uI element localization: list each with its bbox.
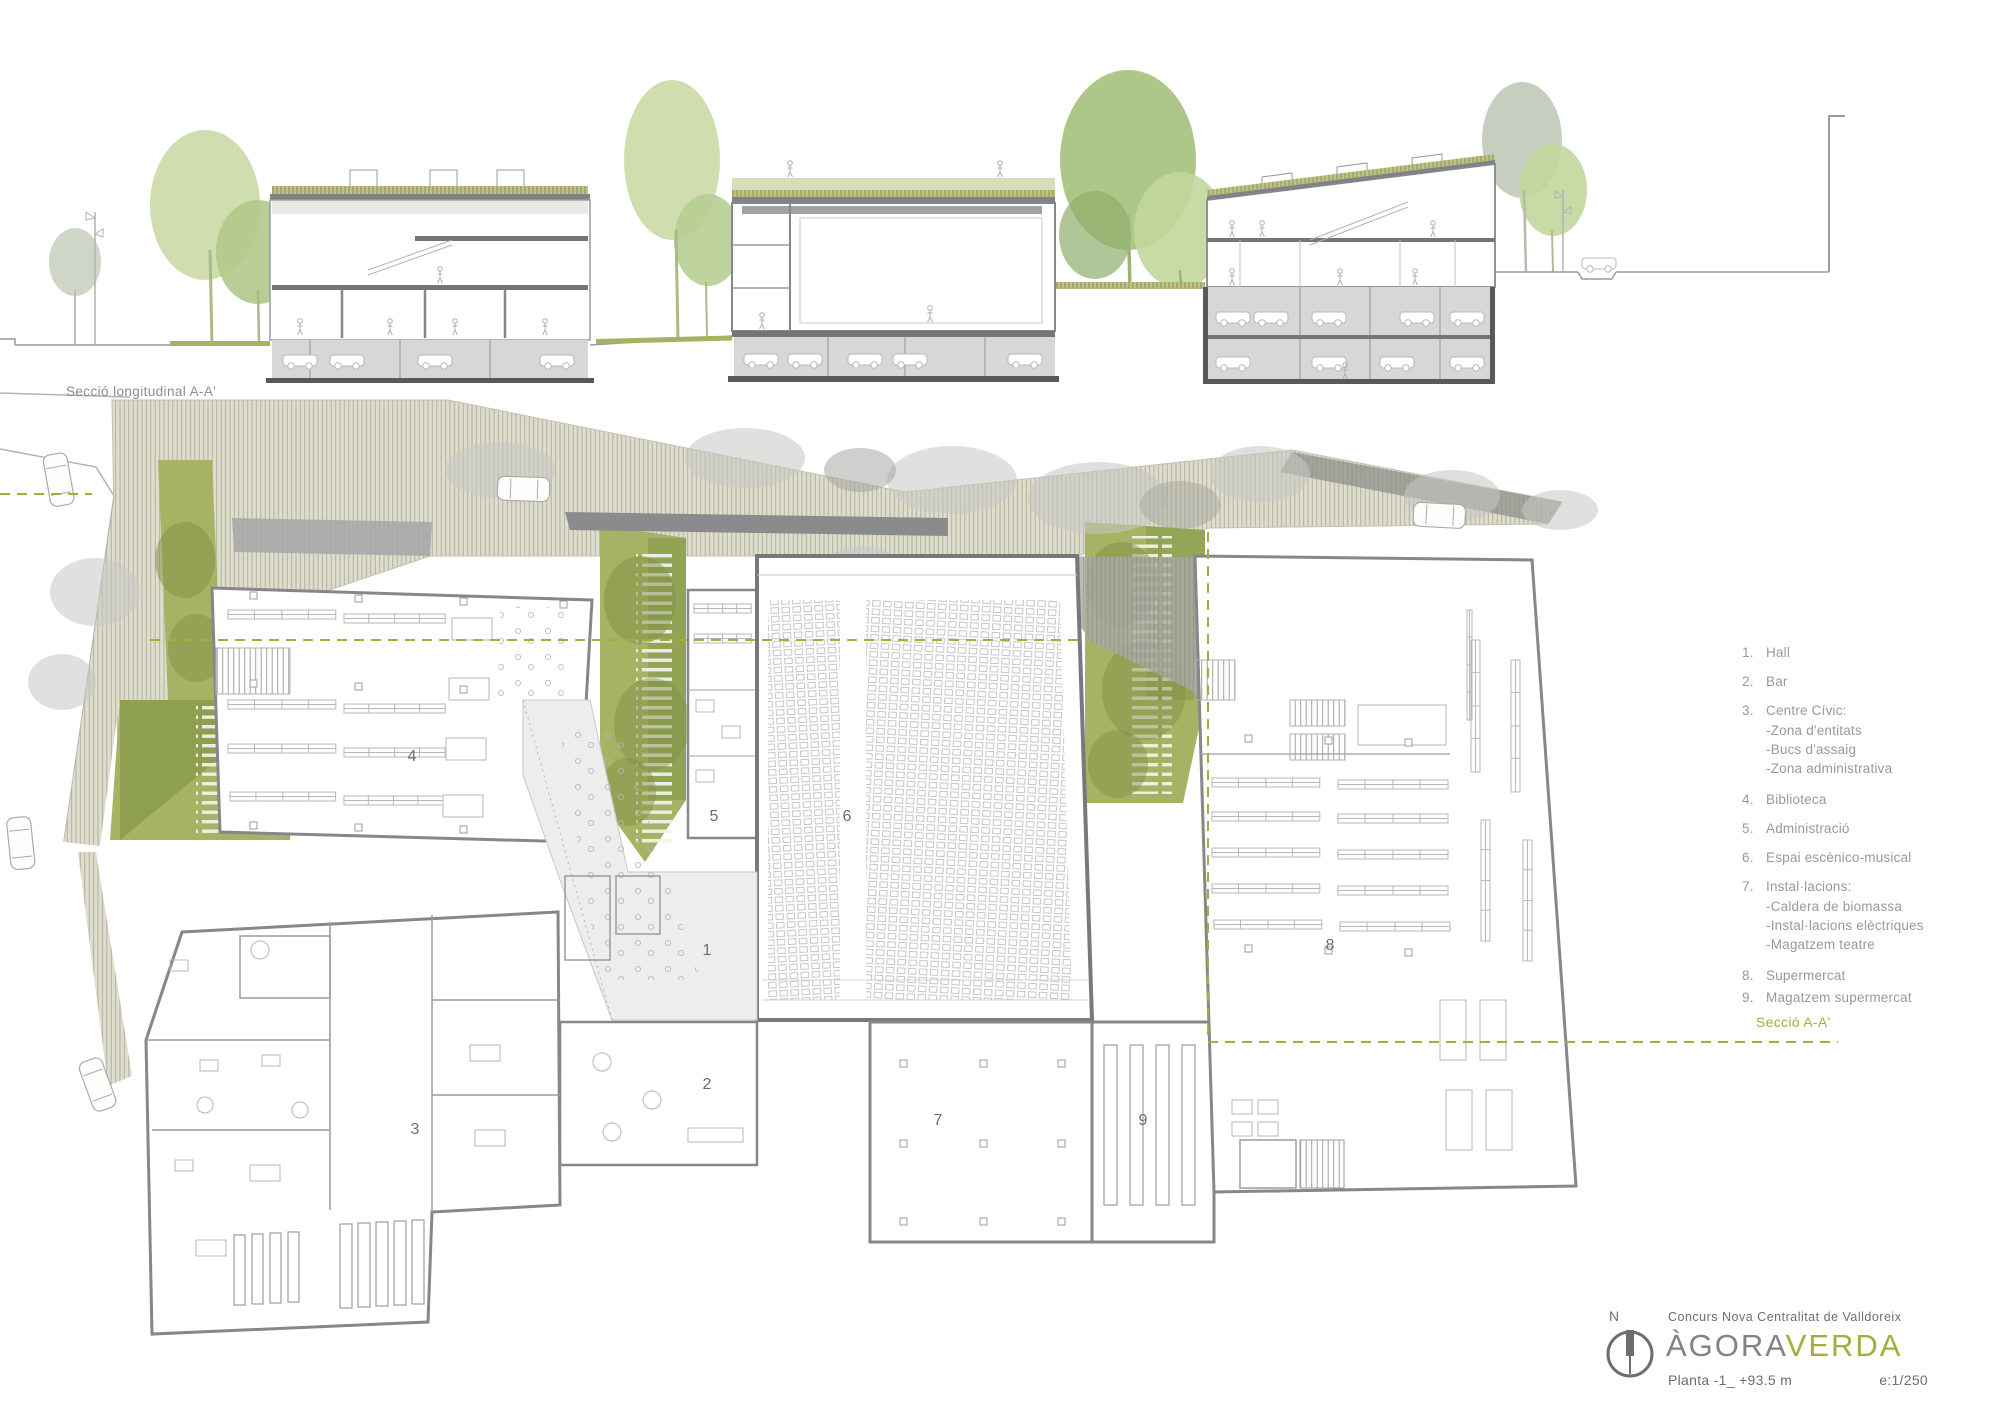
section-right-building: [1203, 154, 1495, 384]
canopy-library: [232, 518, 432, 556]
legend-item-3: 3.Centre Cívic: -Zona d'entitats -Bucs d…: [1742, 704, 1982, 778]
sheet-scale: e:1/250: [1879, 1372, 1928, 1388]
plan-number-6: 6: [843, 808, 852, 826]
room-storage: [1092, 1022, 1214, 1242]
plan-number-1: 1: [703, 942, 712, 960]
legend-sub: -Caldera de biomassa: [1766, 897, 1982, 916]
plan-number-8: 8: [1326, 937, 1335, 955]
section-left-building: [266, 170, 594, 383]
street-car: [1582, 258, 1616, 272]
plan-number-2: 2: [703, 1076, 712, 1094]
section-trees-left: [49, 130, 300, 345]
titleblock-sheet-row: Planta -1_ +93.5 m e:1/250: [1668, 1372, 1928, 1388]
legend-item-4: 4.Biblioteca: [1742, 793, 1982, 807]
legend-item-8: 8.Supermercat: [1742, 969, 1982, 983]
promenade-southwest: [78, 852, 132, 1086]
legend-item-9: 9.Magatzem supermercat: [1742, 991, 1982, 1005]
drawing-canvas: [0, 0, 2000, 1414]
section-trees-right: [1482, 82, 1587, 272]
project-name-gray: ÀGORA: [1666, 1328, 1786, 1363]
grass-strip: [596, 335, 732, 344]
sheet-agora-verda: Secció longitudinal A-A' 1.Hall 2.Bar 3.…: [0, 0, 2000, 1414]
floor-plan: [0, 393, 1838, 1334]
plan-number-5: 5: [710, 808, 719, 826]
legend-sub: -Zona d'entitats: [1766, 721, 1982, 740]
legend-sub: -Zona administrativa: [1766, 759, 1982, 778]
room-theatre: [757, 556, 1092, 1020]
room-installations: [870, 1022, 1092, 1242]
room-supermarket: [1195, 556, 1576, 1192]
section-caption: Secció longitudinal A-A': [66, 384, 216, 399]
titleblock-competition: Concurs Nova Centralitat de Valldoreix: [1668, 1310, 1901, 1324]
section-trees-mid: [624, 80, 742, 340]
grass-strip: [170, 341, 270, 346]
room-admin: [688, 590, 757, 838]
plan-number-9: 9: [1139, 1112, 1148, 1130]
legend-sub: -Bucs d'assaig: [1766, 740, 1982, 759]
plan-number-3: 3: [411, 1121, 420, 1139]
legend-item-7: 7.Instal·lacions: -Caldera de biomassa -…: [1742, 880, 1982, 954]
sheet-level: Planta -1_ +93.5 m: [1668, 1372, 1792, 1388]
legend-sub: -Magatzem teatre: [1766, 935, 1982, 954]
room-centre-civic: [146, 912, 560, 1334]
project-name-green: VERDA: [1786, 1328, 1903, 1363]
legend: 1.Hall 2.Bar 3.Centre Cívic: -Zona d'ent…: [1742, 646, 1982, 1020]
section-middle-building: [728, 161, 1059, 382]
plan-number-7: 7: [934, 1112, 943, 1130]
legend-sub: -Instal·lacions elèctriques: [1766, 916, 1982, 935]
plan-number-4: 4: [408, 748, 417, 766]
legend-item-6: 6.Espai escènico-musical: [1742, 851, 1982, 865]
section-trees-grove: [1059, 70, 1226, 288]
north-arrow-icon: [1608, 1330, 1652, 1376]
green-deck: [1055, 282, 1205, 289]
plan-tree-dark: [1140, 481, 1220, 529]
plan-tree-dark: [824, 448, 896, 492]
titleblock-project-name: ÀGORAVERDA: [1666, 1328, 1902, 1364]
legend-item-2: 2.Bar: [1742, 675, 1982, 689]
north-letter: N: [1609, 1308, 1619, 1324]
legend-item-1: 1.Hall: [1742, 646, 1982, 660]
legend-item-5: 5.Administració: [1742, 822, 1982, 836]
section-aa-marker: Secció A-A': [1756, 1014, 1830, 1030]
longitudinal-section: [0, 70, 1845, 384]
